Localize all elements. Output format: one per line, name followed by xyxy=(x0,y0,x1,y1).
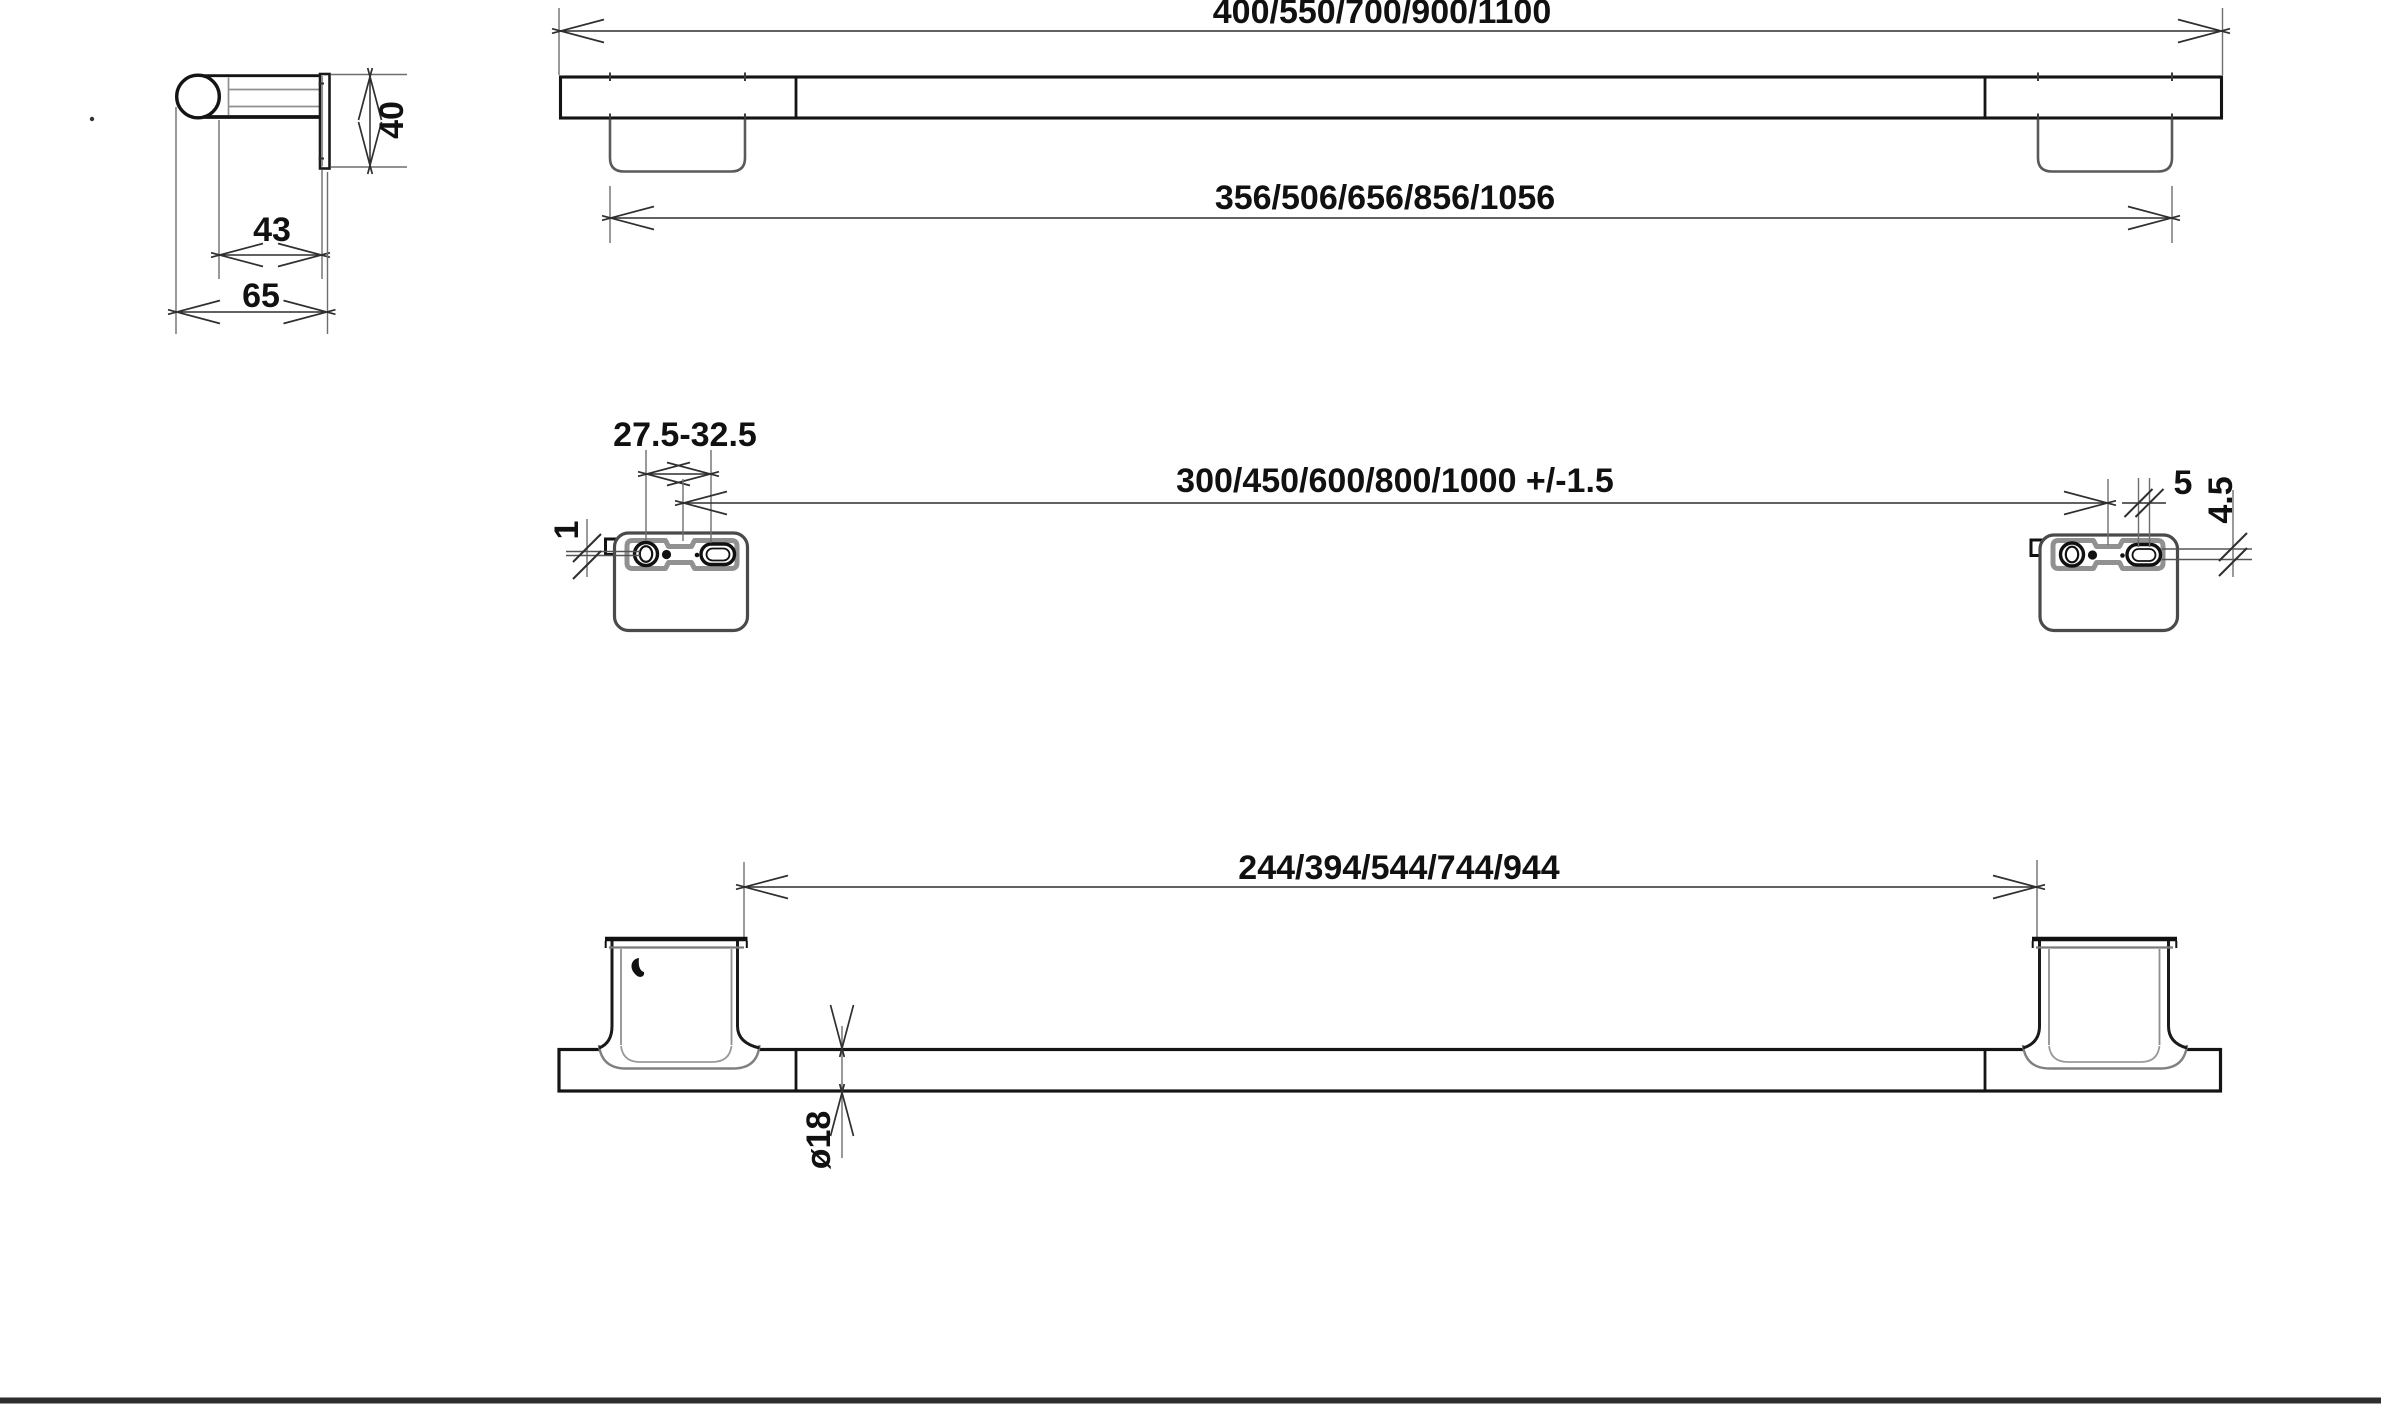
dimension-screw-slot-range: 27.5-32.5 xyxy=(613,416,757,543)
right-small-dot xyxy=(2120,553,2125,558)
bottom-view: 244/394/544/744/944 xyxy=(559,849,2221,1169)
dimension-overall-length: 400/550/700/900/1100 xyxy=(552,0,2230,75)
right-pin-dot xyxy=(2088,550,2097,559)
hole-spacing-label: 300/450/600/800/1000 +/-1.5 xyxy=(1176,462,1614,500)
profile-total-depth-label: 65 xyxy=(242,277,280,315)
mounting-detail-view: 27.5-32.5 300/450/600/800/1000 +/-1.5 1 … xyxy=(548,416,2252,631)
left-pin-dot xyxy=(662,550,671,559)
left-slot-inner xyxy=(707,549,730,561)
bar-diameter-label: ø18 xyxy=(800,1111,838,1170)
left-foot-screw-mark xyxy=(632,958,645,977)
dimension-65: 65 xyxy=(168,107,336,334)
dimension-40: 40 xyxy=(331,68,411,174)
front-view: 400/550/700/900/1100 356/506/656/856/105… xyxy=(552,0,2230,243)
left-foot-bottom-view xyxy=(599,939,760,1069)
screw-slot-range-label: 27.5-32.5 xyxy=(613,416,757,454)
footer-rule xyxy=(0,1398,2381,1404)
overall-length-label: 400/550/700/900/1100 xyxy=(1213,0,1551,31)
profile-bar-depth-label: 43 xyxy=(253,211,291,249)
dimension-foot-outer-span: 356/506/656/856/1056 xyxy=(602,179,2180,243)
bar-end-profile xyxy=(177,75,321,118)
wall-plate-profile xyxy=(319,74,330,169)
left-small-dot xyxy=(695,553,700,558)
right-foot-bottom-view xyxy=(2023,939,2187,1069)
profile-height-label: 40 xyxy=(373,101,411,139)
wall-gap-label: 1 xyxy=(548,521,586,540)
foot-outer-span-label: 356/506/656/856/1056 xyxy=(1215,179,1555,217)
side-profile-view: 40 43 65 xyxy=(90,68,411,334)
stray-dot xyxy=(90,117,94,121)
dimension-foot-inner-span: 244/394/544/744/944 xyxy=(736,849,2045,937)
foot-inner-span-label: 244/394/544/744/944 xyxy=(1238,849,1560,887)
left-foot-front xyxy=(610,120,745,172)
bar-front xyxy=(561,73,2222,123)
left-mounting-bracket xyxy=(606,533,748,631)
bar-bottom-view xyxy=(559,1050,2221,1092)
right-mounting-bracket xyxy=(2031,535,2178,631)
technical-drawing-canvas: 40 43 65 400/550/700/900/1100 xyxy=(0,0,2381,1404)
right-screw-hole-inner xyxy=(2066,547,2078,563)
dimension-43: 43 xyxy=(211,120,330,279)
right-foot-front xyxy=(2038,120,2172,172)
dimension-hole-spacing: 300/450/600/800/1000 +/-1.5 xyxy=(675,462,2116,545)
left-screw-hole-inner xyxy=(640,546,652,562)
slot-offset-label: 4.5 xyxy=(2202,476,2240,523)
slot-width-label: 5 xyxy=(2174,464,2193,502)
right-slot-inner xyxy=(2133,549,2156,561)
